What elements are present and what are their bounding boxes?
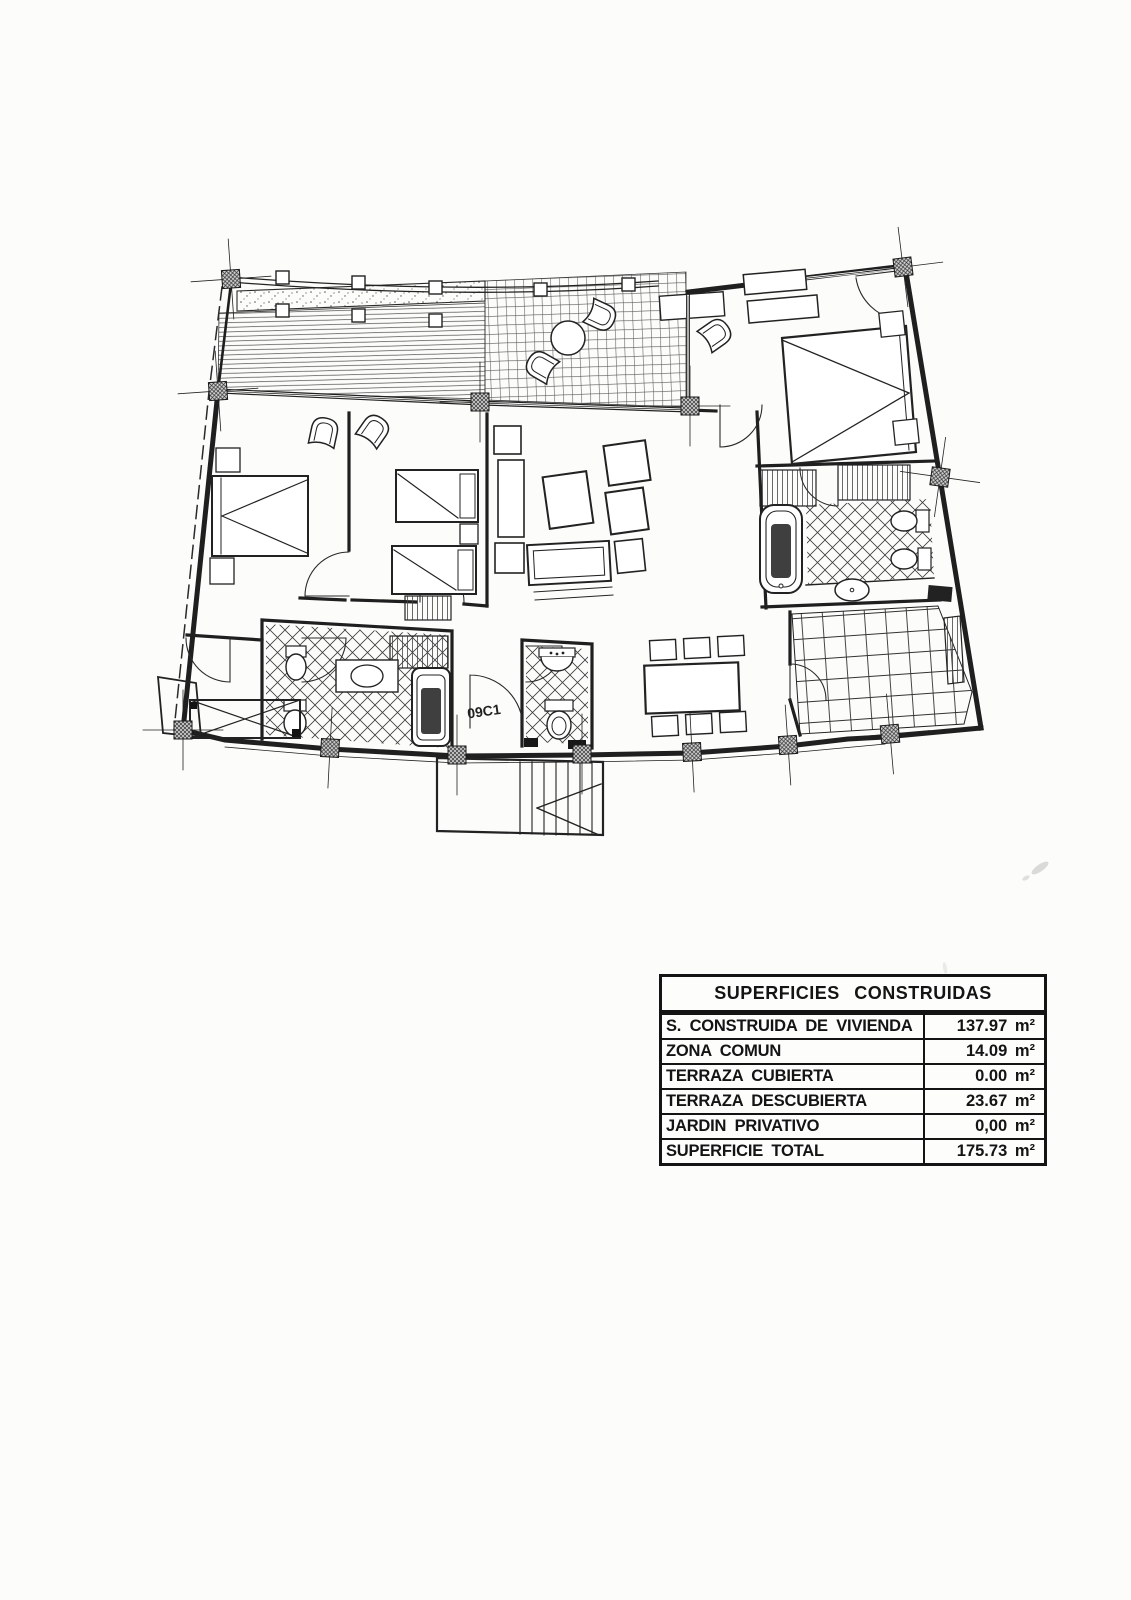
area-value: 23.67 m² (925, 1090, 1044, 1113)
toilet (918, 548, 931, 570)
washbasin (351, 665, 383, 687)
staircase (437, 758, 603, 835)
sofa (527, 541, 611, 585)
master-bedroom (697, 269, 919, 464)
nightstand (460, 524, 478, 544)
area-value: 137.97 m² (925, 1015, 1044, 1038)
bidet (891, 511, 917, 531)
washbasin (539, 648, 575, 657)
floor-plan-drawing: 09C1 (0, 0, 1131, 1600)
bedroom-2 (355, 411, 478, 594)
areas-table-title: SUPERFICIES CONSTRUIDAS (662, 977, 1044, 1013)
area-label: JARDIN PRIVATIVO (662, 1115, 925, 1138)
area-value: 0.00 m² (925, 1065, 1044, 1088)
dresser (743, 269, 807, 294)
toilet (545, 700, 573, 711)
tv-cabinet (498, 460, 524, 537)
toilet (891, 549, 917, 569)
armchair (308, 416, 339, 449)
terrace-bench (659, 292, 725, 320)
bed (212, 476, 308, 556)
scan-smudges (942, 859, 1050, 974)
nightstand (216, 448, 240, 472)
dining-area (644, 635, 746, 736)
nightstand (210, 558, 234, 584)
master-bath-floor (806, 499, 934, 584)
areas-table-row: SUPERFICIE TOTAL 175.73 m² (662, 1138, 1044, 1163)
areas-table-row: ZONA COMUN 14.09 m² (662, 1038, 1044, 1063)
bidet (916, 510, 929, 532)
armchair (355, 411, 392, 449)
area-label: TERRAZA DESCUBIERTA (662, 1090, 925, 1113)
unit-label: 09C1 (466, 701, 502, 722)
area-label: ZONA COMUN (662, 1040, 925, 1063)
tv-cabinet (494, 426, 521, 454)
scanned-floor-plan-page: 09C1 SUPERFICIES CONSTRUIDAS S. CONSTRUI… (0, 0, 1131, 1600)
cabinet (927, 585, 952, 602)
terrace-table (551, 321, 585, 355)
coffee-table (543, 471, 594, 529)
area-label: TERRAZA CUBIERTA (662, 1065, 925, 1088)
armchair (603, 440, 650, 485)
areas-table-row: TERRAZA CUBIERTA 0.00 m² (662, 1063, 1044, 1088)
areas-table-row: S. CONSTRUIDA DE VIVIENDA 137.97 m² (662, 1013, 1044, 1038)
area-value: 14.09 m² (925, 1040, 1044, 1063)
areas-table-row: TERRAZA DESCUBIERTA 23.67 m² (662, 1088, 1044, 1113)
area-value: 175.73 m² (925, 1140, 1044, 1163)
area-label: S. CONSTRUIDA DE VIVIENDA (662, 1015, 925, 1038)
bidet (286, 654, 306, 680)
sideboard (495, 543, 524, 573)
side-table (614, 539, 645, 574)
terrace (218, 271, 725, 407)
bedroom-1 (210, 416, 340, 584)
living-room (494, 426, 651, 600)
nightstand (879, 311, 905, 337)
dining-table (644, 662, 740, 713)
dresser (747, 295, 819, 323)
areas-table: SUPERFICIES CONSTRUIDAS S. CONSTRUIDA DE… (659, 974, 1047, 1166)
areas-table-row: JARDIN PRIVATIVO 0,00 m² (662, 1113, 1044, 1138)
area-value: 0,00 m² (925, 1115, 1044, 1138)
armchair (697, 315, 735, 352)
nightstand (893, 419, 919, 445)
armchair (605, 488, 648, 535)
area-label: SUPERFICIE TOTAL (662, 1140, 925, 1163)
